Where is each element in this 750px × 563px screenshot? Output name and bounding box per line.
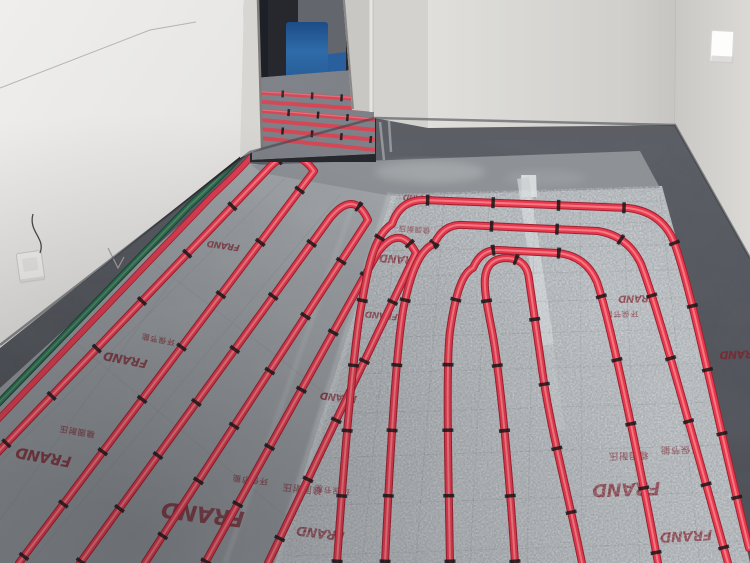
vignette (0, 0, 750, 563)
room-photo: FRAND 稳固耐压 环保节能 FRAND 稳固耐压 FRAND 环保节能 FR… (0, 0, 750, 563)
